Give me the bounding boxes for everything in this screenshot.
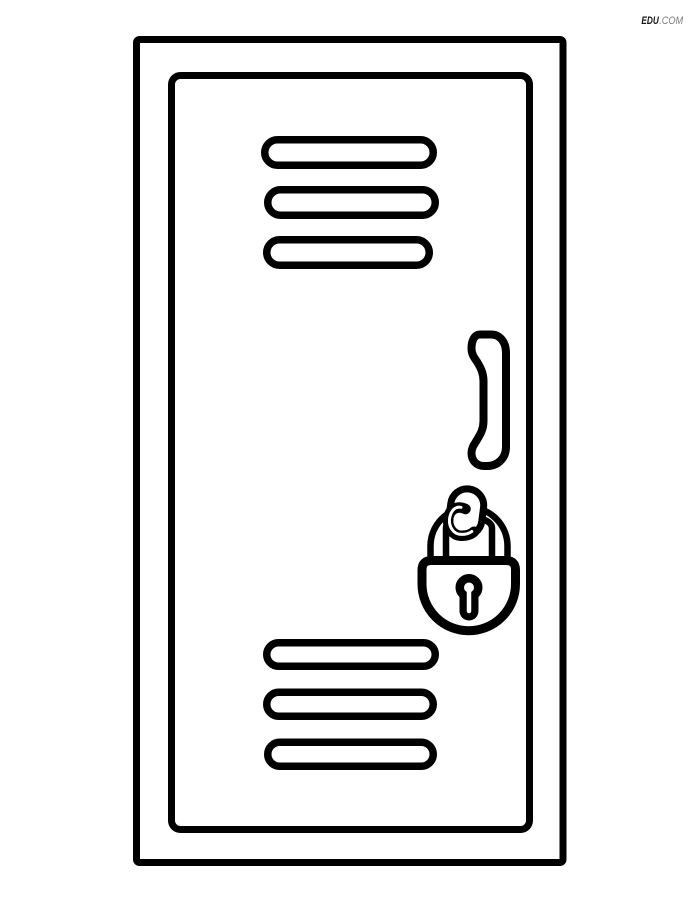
svg-text:EDU: EDU: [641, 15, 659, 27]
svg-text:.COM: .COM: [659, 15, 683, 27]
